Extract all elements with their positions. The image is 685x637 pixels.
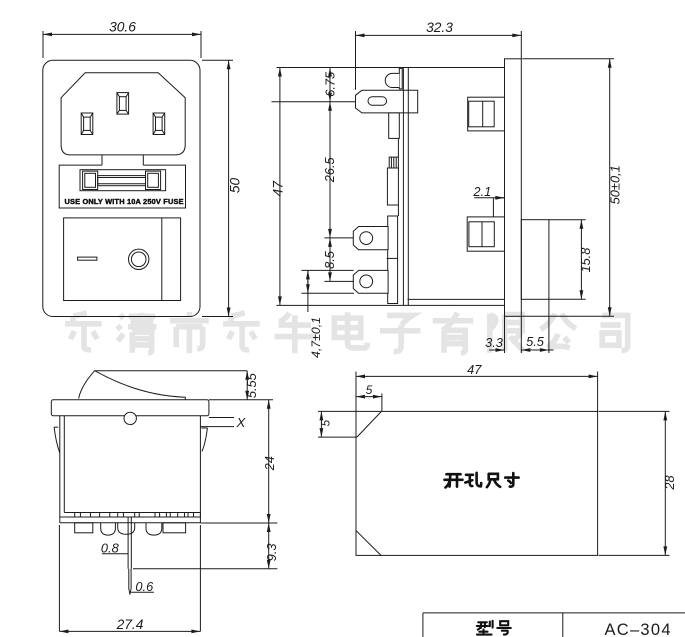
- svg-text:5.55: 5.55: [244, 372, 259, 398]
- svg-text:8.5: 8.5: [322, 250, 337, 269]
- svg-text:30.6: 30.6: [109, 20, 136, 35]
- svg-text:47: 47: [270, 180, 285, 197]
- svg-text:6.75: 6.75: [322, 71, 337, 97]
- svg-text:2.1: 2.1: [472, 184, 491, 199]
- svg-text:X: X: [236, 415, 247, 430]
- svg-text:AC–304: AC–304: [605, 621, 671, 637]
- svg-text:5: 5: [319, 419, 333, 426]
- svg-text:28: 28: [662, 475, 677, 491]
- svg-text:5: 5: [366, 383, 373, 397]
- svg-text:50: 50: [227, 178, 242, 194]
- svg-text:32.3: 32.3: [426, 20, 453, 35]
- svg-text:4,7±0,1: 4,7±0,1: [309, 317, 323, 358]
- svg-text:47: 47: [467, 362, 482, 377]
- svg-text:27.4: 27.4: [116, 617, 144, 632]
- svg-text:26.5: 26.5: [322, 156, 337, 183]
- svg-text:50±0,1: 50±0,1: [608, 165, 623, 204]
- svg-text:3.3: 3.3: [485, 335, 503, 350]
- svg-text:5.5: 5.5: [526, 334, 545, 349]
- svg-text:24: 24: [262, 456, 277, 471]
- svg-text:0.6: 0.6: [135, 579, 154, 594]
- svg-text:USE ONLY WITH 10A 250V FUSE: USE ONLY WITH 10A 250V FUSE: [65, 197, 184, 206]
- svg-text:9.3: 9.3: [264, 544, 279, 562]
- svg-text:15.8: 15.8: [578, 247, 593, 273]
